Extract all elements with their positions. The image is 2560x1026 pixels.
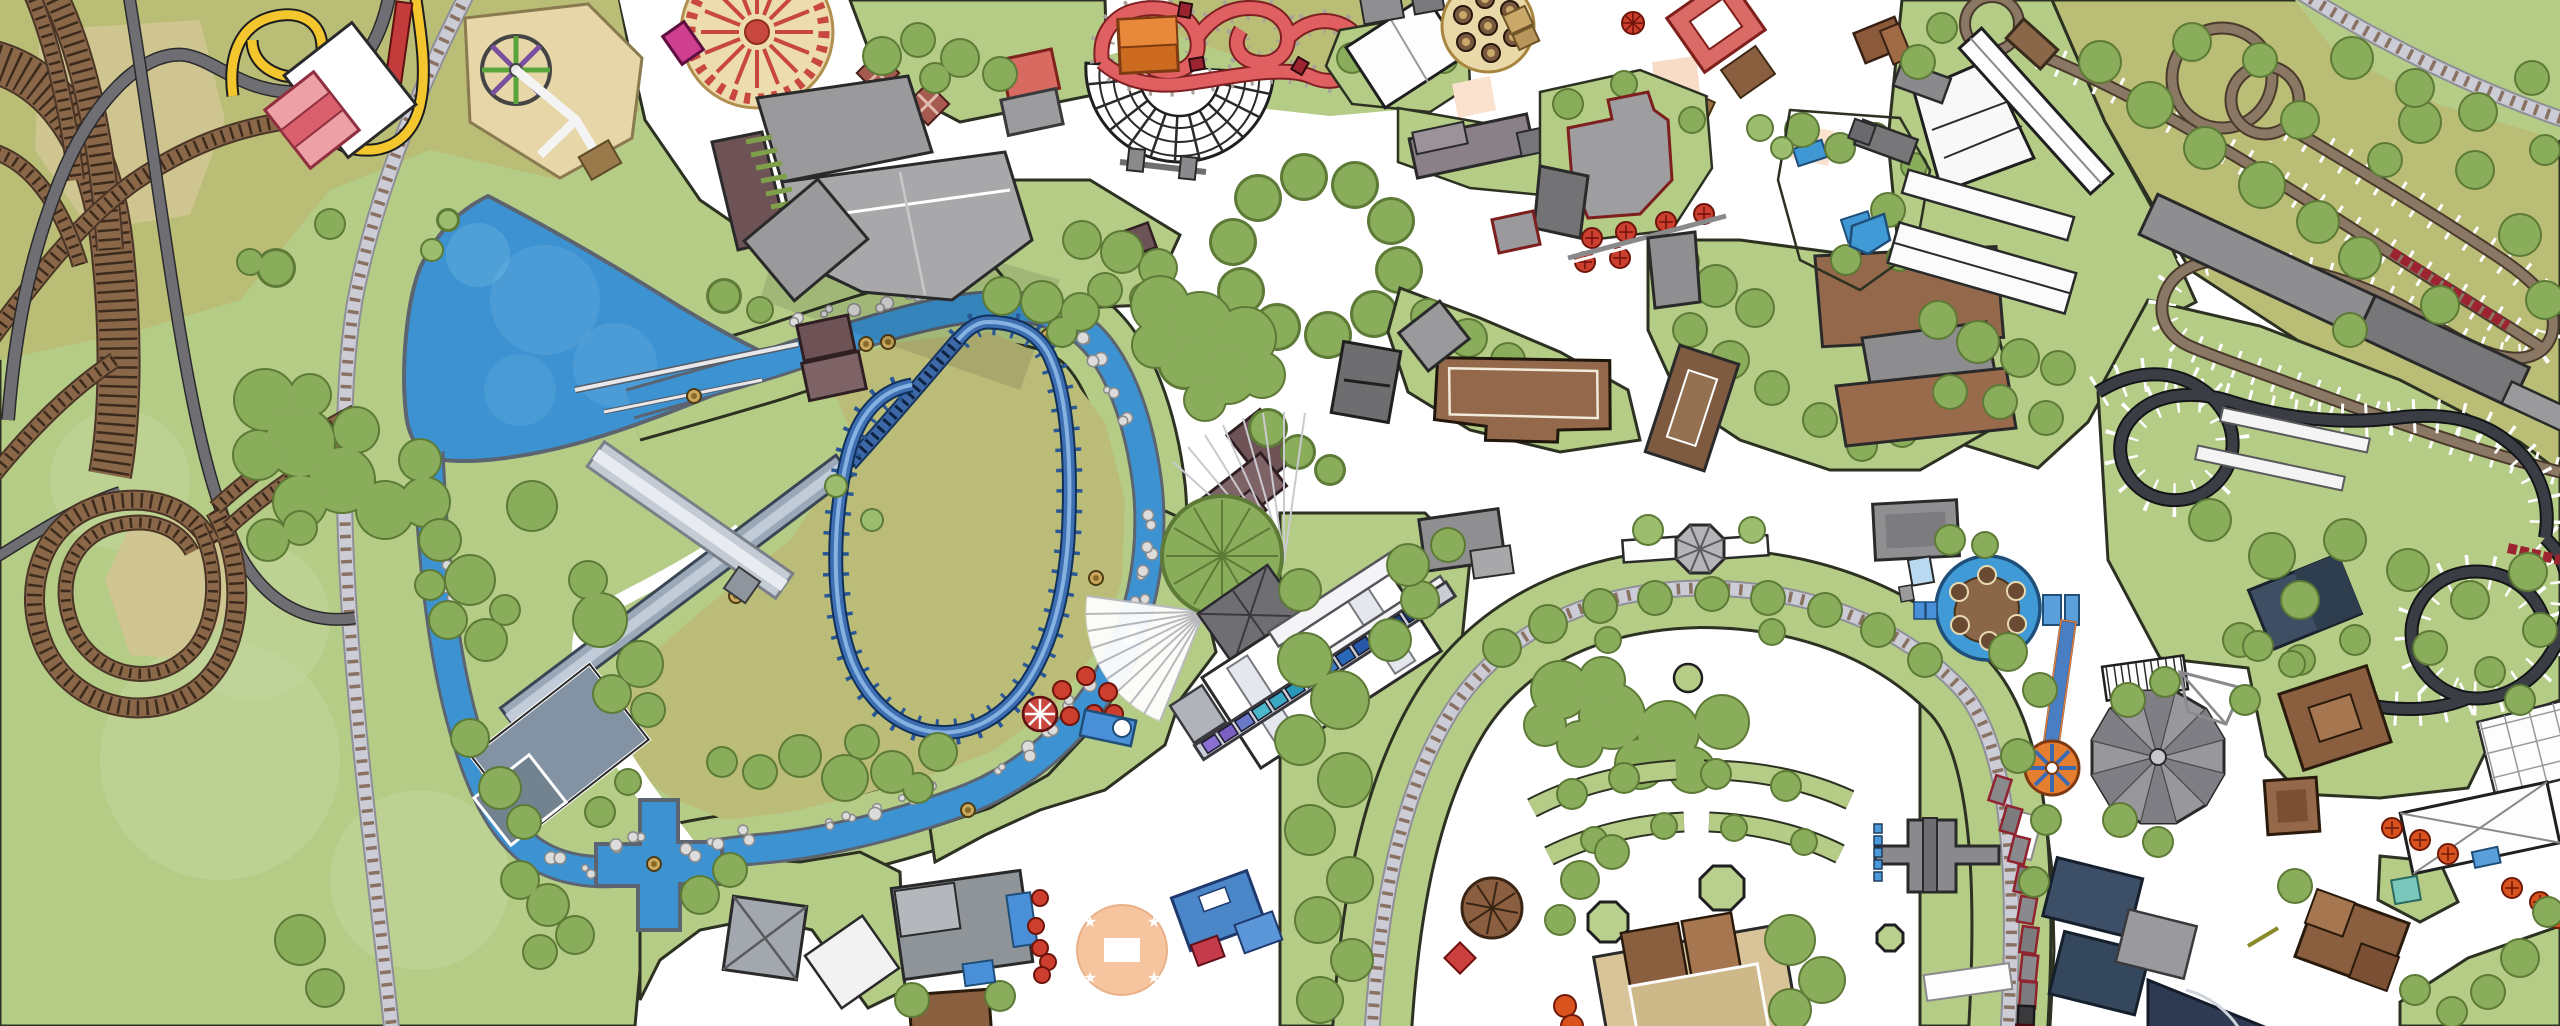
- svg-text:★: ★: [1147, 970, 1161, 987]
- svg-text:★: ★: [1083, 970, 1097, 987]
- svg-text:★: ★: [1083, 914, 1097, 931]
- svg-text:★: ★: [1147, 914, 1161, 931]
